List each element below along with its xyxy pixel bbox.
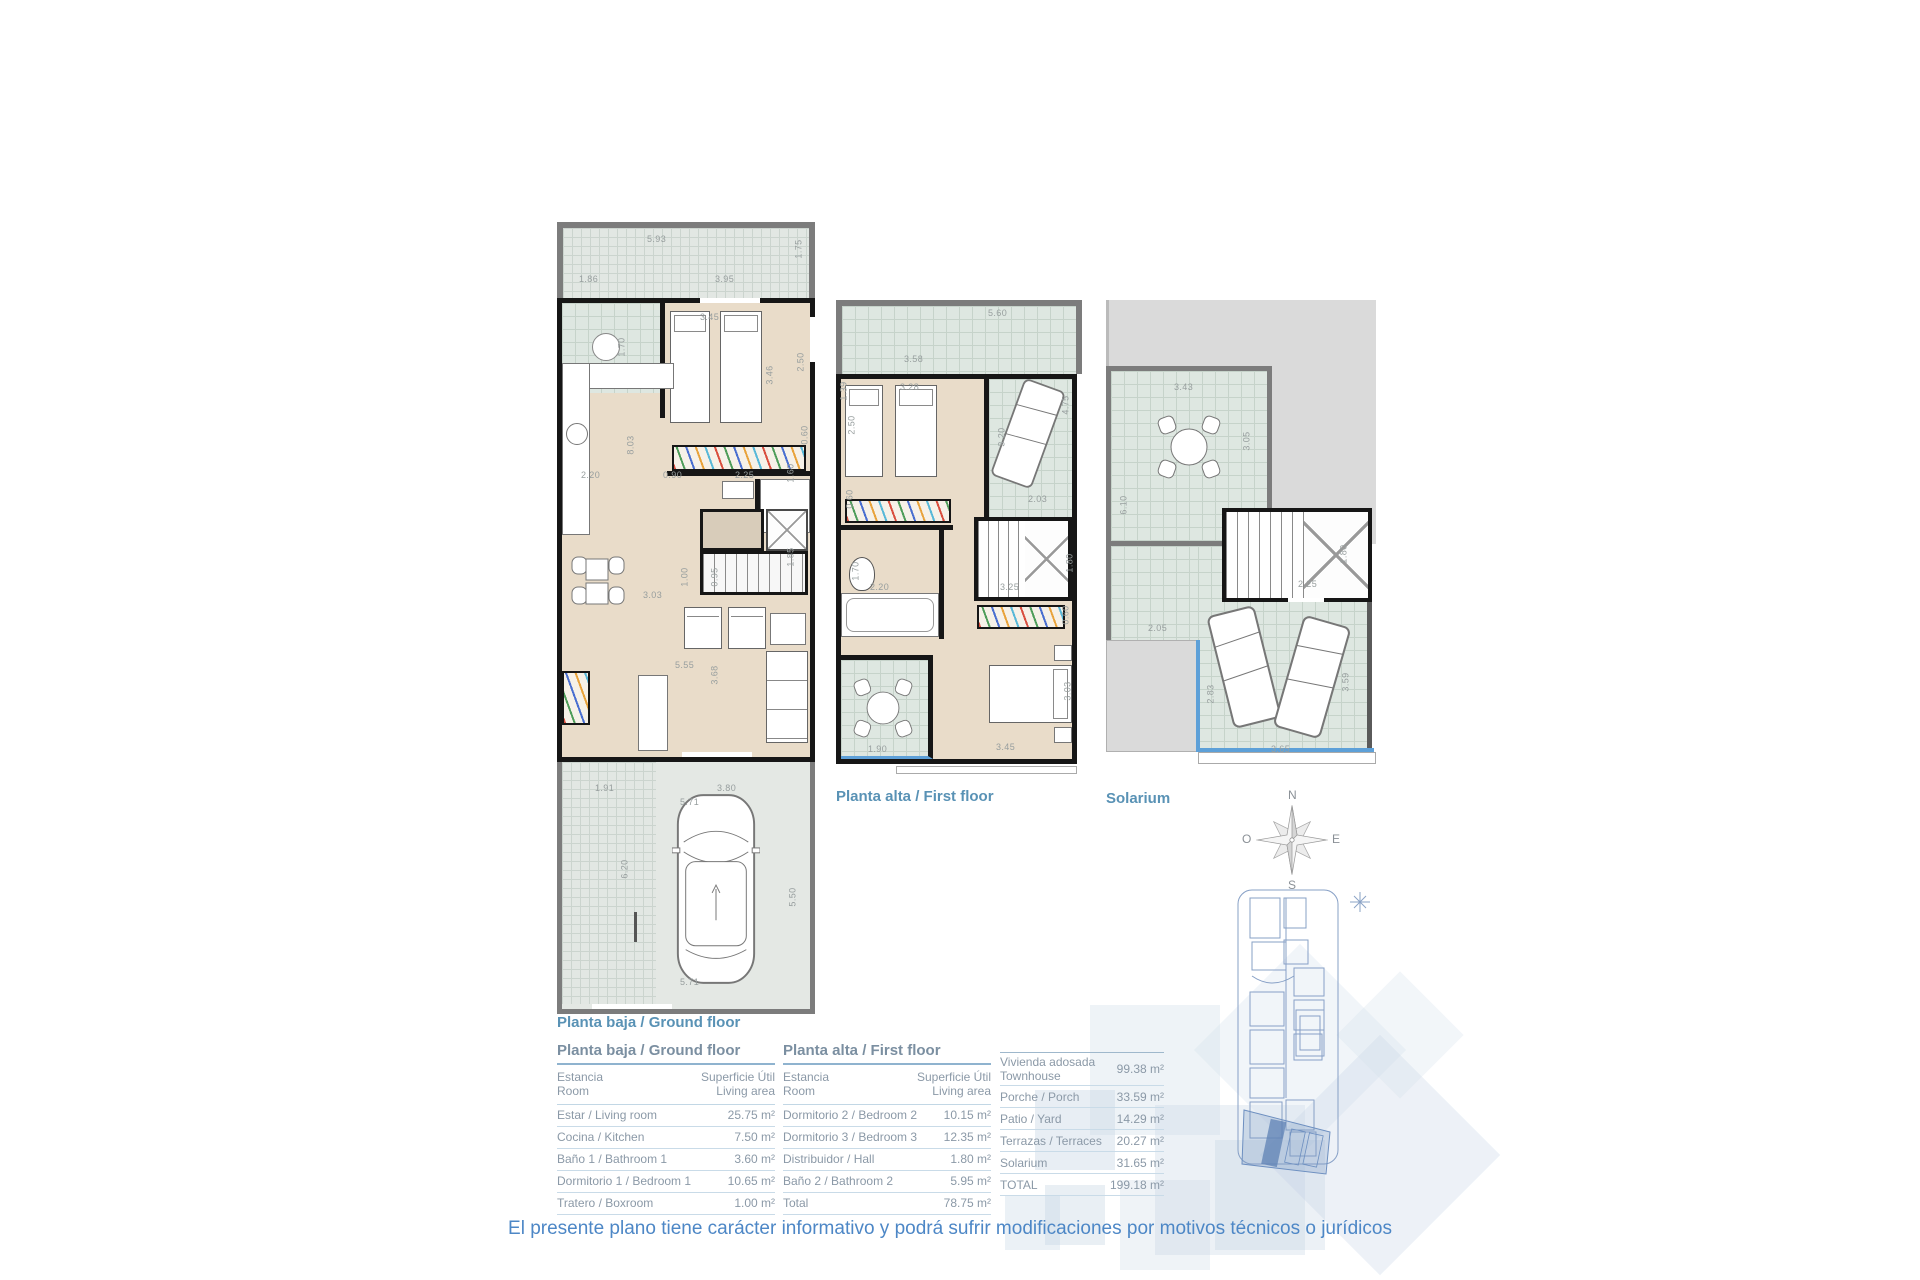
armchair [684, 607, 722, 649]
armchair [728, 607, 766, 649]
table-row: Cocina / Kitchen7.50 m² [557, 1127, 775, 1149]
table-row: Vivienda adosadaTownhouse99.38 m² [1000, 1053, 1164, 1086]
dimension-label: 0.60 [845, 489, 855, 508]
table-row: Dormitorio 3 / Bedroom 312.35 m² [783, 1127, 991, 1149]
plan-first-floor: 5.60 1.39 3.58 3.28 2.50 4.75 3.20 0.60 … [836, 300, 1082, 810]
dimension-label: 3.45 [700, 312, 719, 322]
door-gap [682, 752, 752, 757]
nightstand [1054, 727, 1072, 743]
dimension-label: 3.25 [1000, 582, 1019, 592]
dimension-label: 1.70 [617, 337, 627, 356]
dimension-label: 1.80 [1339, 544, 1349, 563]
dimension-label: 0.60 [800, 425, 810, 444]
dimension-label: 8.03 [626, 435, 636, 454]
dimension-label: 1.00 [680, 567, 690, 586]
side-table [770, 613, 806, 645]
caption-solarium: Solarium [1106, 790, 1170, 807]
nightstand [1054, 645, 1072, 661]
bed [670, 311, 710, 423]
table-row: Estar / Living room25.75 m² [557, 1105, 775, 1127]
table-row: Solarium31.65 m² [1000, 1152, 1164, 1174]
dimension-label: 3.03 [1063, 681, 1073, 700]
table-title: Planta alta / First floor [783, 1042, 991, 1065]
pillow [724, 315, 758, 332]
dimension-label: 2.50 [847, 415, 857, 434]
dimension-label: 2.83 [1206, 684, 1216, 703]
dimension-label: 2.20 [870, 582, 889, 592]
compass-north-label: N [1288, 788, 1297, 802]
header-room-en: Room [557, 1084, 589, 1098]
plan-ground-floor: 5.93 1.75 1.86 3.95 3.45 2.50 3.46 1.70 … [557, 222, 815, 1022]
table-row: Tratero / Boxroom1.00 m² [557, 1193, 775, 1215]
plan-solarium: 3.43 3.05 6.10 2.25 1.80 2.05 2.83 3.65 … [1106, 300, 1376, 810]
dimension-label: 2.20 [581, 470, 600, 480]
dimension-label: 1.75 [794, 239, 804, 258]
bed [895, 385, 937, 477]
dimension-label: 2.25 [735, 470, 754, 480]
dimension-label: 0.90 [663, 470, 682, 480]
wardrobe [845, 499, 951, 523]
table-first-floor: Planta alta / First floor EstanciaRoom S… [783, 1042, 991, 1215]
dimension-label: 3.58 [904, 354, 923, 364]
roof-notch [1106, 640, 1198, 752]
dimension-label: 2.03 [1028, 494, 1047, 504]
table-totals: Vivienda adosadaTownhouse99.38 m² Porche… [1000, 1052, 1164, 1196]
dimension-label: 5.71 [680, 977, 699, 987]
dimension-label: 1.85 [786, 547, 796, 566]
header-area-es: Superficie Útil [917, 1070, 991, 1084]
terrace-top [836, 300, 1082, 374]
dimension-label: 3.80 [717, 783, 736, 793]
table-row: Patio / Yard14.29 m² [1000, 1108, 1164, 1130]
dimension-label: 0.95 [710, 567, 720, 586]
table-row: Total78.75 m² [783, 1193, 991, 1215]
dimension-label: 1.70 [851, 561, 861, 580]
dimension-label: 6.20 [620, 859, 630, 878]
stair-bulkhead [1222, 508, 1372, 602]
site-plan [1232, 882, 1392, 1182]
table-row: Terrazas / Terraces20.27 m² [1000, 1130, 1164, 1152]
bed [720, 311, 762, 423]
patio-tiles [562, 762, 656, 1004]
dimension-label: 5.50 [788, 887, 798, 906]
sink [722, 481, 754, 499]
round-table [1157, 415, 1221, 479]
stair-landing [766, 509, 808, 551]
dimension-label: 3.03 [643, 590, 662, 600]
dimension-label: 3.46 [765, 365, 775, 384]
page: { "captions": { "ground": "Planta baja /… [0, 0, 1920, 1280]
compass-east-label: E [1332, 832, 1340, 846]
glass-railing [1196, 640, 1200, 752]
dimension-label: 1.39 [839, 381, 849, 400]
header-room-es: Estancia [783, 1070, 829, 1084]
compass-west-label: O [1242, 832, 1251, 846]
dimension-label: 3.45 [996, 742, 1015, 752]
table-row: Baño 2 / Bathroom 25.95 m² [783, 1171, 991, 1193]
dimension-label: 1.80 [1065, 553, 1075, 572]
car [672, 790, 760, 988]
table-title: Planta baja / Ground floor [557, 1042, 775, 1065]
wall [939, 529, 944, 639]
dimension-label: 6.10 [1119, 495, 1129, 514]
dimension-label: 1.91 [595, 783, 614, 793]
site-compass-icon [1350, 892, 1370, 912]
dimension-label: 1.86 [579, 274, 598, 284]
first-floor-interior [836, 374, 1077, 764]
sun-lounger [1204, 603, 1283, 730]
storage-cabinet [562, 671, 590, 725]
staircase [974, 517, 1072, 601]
dimension-label: 1.60 [786, 463, 796, 482]
header-room-es: Estancia [557, 1070, 603, 1084]
dimension-label: 3.20 [997, 427, 1007, 446]
bathtub [841, 593, 939, 637]
caption-ground-floor: Planta baja / Ground floor [557, 1014, 740, 1031]
header-room-en: Room [783, 1084, 815, 1098]
table-row: Porche / Porch33.59 m² [1000, 1086, 1164, 1108]
dimension-label: 3.43 [1174, 382, 1193, 392]
header-area-es: Superficie Útil [701, 1070, 775, 1084]
round-table [853, 678, 913, 738]
house-interior [557, 298, 815, 762]
eave-line [896, 766, 1077, 774]
caption-first-floor: Planta alta / First floor [836, 788, 994, 805]
dimension-label: 2.05 [1148, 623, 1167, 633]
table-header: EstanciaRoom Superficie ÚtilLiving area [557, 1065, 775, 1105]
wall [660, 303, 665, 418]
dimension-label: 5.93 [647, 234, 666, 244]
dimension-label: 2.25 [1298, 579, 1317, 589]
compass-star-icon [1256, 804, 1328, 876]
double-bed [989, 665, 1072, 723]
understairs-storage [700, 509, 764, 551]
dimension-label: 4.75 [1061, 395, 1071, 414]
table-row: Dormitorio 1 / Bedroom 110.65 m² [557, 1171, 775, 1193]
dining-table [570, 551, 626, 615]
kitchen-counter [562, 363, 590, 535]
table-row: Dormitorio 2 / Bedroom 210.15 m² [783, 1105, 991, 1127]
dimension-label: 3.05 [1242, 431, 1252, 450]
porch [557, 222, 815, 298]
disclaimer-text: El presente plano tiene carácter informa… [450, 1218, 1450, 1240]
dimension-label: 5.60 [988, 308, 1007, 318]
wardrobe [977, 605, 1065, 629]
dimension-label: 0.60 [1061, 605, 1071, 624]
patio-post [634, 912, 637, 942]
roof-area [1106, 300, 1376, 366]
table-ground-floor: Planta baja / Ground floor EstanciaRoom … [557, 1042, 775, 1215]
table-row: TOTAL199.18 m² [1000, 1174, 1164, 1196]
kitchen-sink [566, 423, 588, 445]
wall [841, 525, 953, 530]
table-header: EstanciaRoom Superficie ÚtilLiving area [783, 1065, 991, 1105]
table-row: Baño 1 / Bathroom 13.60 m² [557, 1149, 775, 1171]
door-gap [700, 298, 760, 303]
dimension-label: 3.68 [710, 665, 720, 684]
header-area-en: Living area [716, 1084, 775, 1098]
pillow [849, 389, 879, 406]
dimension-label: 3.59 [1341, 672, 1351, 691]
table-row: Distribuidor / Hall1.80 m² [783, 1149, 991, 1171]
tv-bench [638, 675, 668, 751]
dimension-label: 5.55 [675, 660, 694, 670]
door-gap [1288, 598, 1324, 602]
dimension-label: 3.65 [1271, 744, 1290, 754]
gate-gap [592, 1004, 672, 1009]
dimension-label: 1.90 [868, 744, 887, 754]
sofa [766, 651, 808, 743]
window-gap [810, 317, 815, 362]
dimension-label: 2.50 [796, 352, 806, 371]
dimension-label: 3.28 [900, 382, 919, 392]
header-area-en: Living area [932, 1084, 991, 1098]
dimension-label: 3.95 [715, 274, 734, 284]
dimension-label: 5.71 [680, 797, 699, 807]
